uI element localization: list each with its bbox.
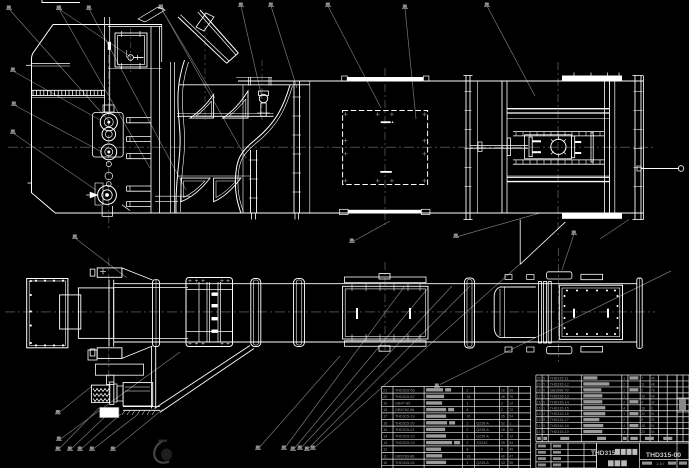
svg-text:THD315-00: THD315-00 [646,452,681,459]
svg-text:34: 34 [509,441,513,445]
svg-text:THD315-57: THD315-57 [395,395,415,399]
svg-text:12: 12 [537,424,541,428]
svg-text:47: 47 [509,454,513,458]
svg-text:17: 17 [383,415,387,419]
svg-text:16: 16 [383,421,387,425]
svg-text:4: 4 [623,406,625,410]
svg-text:3: 3 [543,394,545,398]
svg-text:78: 78 [651,388,655,392]
svg-text:19: 19 [383,402,387,406]
svg-text:Q235-A: Q235-A [476,421,489,425]
svg-text:12: 12 [509,402,513,406]
svg-text:30: 30 [641,394,645,398]
svg-text:19: 19 [537,382,541,386]
svg-text:8: 8 [543,418,545,422]
svg-text:2: 2 [466,388,468,392]
svg-text:THD315: THD315 [591,450,616,457]
svg-text:4: 4 [641,400,643,404]
svg-text:Q235-A: Q235-A [476,428,489,432]
svg-text:Q235-A: Q235-A [476,435,489,439]
svg-text:48: 48 [501,395,505,399]
svg-text:40: 40 [501,454,505,458]
svg-text:15: 15 [537,406,541,410]
svg-text:10: 10 [383,461,387,465]
svg-text:43: 43 [501,461,505,465]
svg-text:GB1096-79: GB1096-79 [550,388,569,392]
svg-text:8: 8 [466,408,468,412]
svg-text:8: 8 [466,448,468,452]
svg-text:GB5783-86: GB5783-86 [395,454,414,458]
svg-text:THD315-18: THD315-18 [550,424,569,428]
svg-text:16: 16 [501,388,505,392]
svg-text:49: 49 [651,376,655,380]
svg-text:13: 13 [537,418,541,422]
svg-text:5: 5 [543,382,545,386]
svg-text:THD315-24: THD315-24 [395,461,415,465]
svg-text:11: 11 [383,454,387,458]
svg-text:54: 54 [509,415,513,419]
svg-text:1: 1 [466,461,468,465]
svg-text:16: 16 [466,454,470,458]
svg-text:1:10: 1:10 [656,461,665,466]
svg-text:20: 20 [537,376,541,380]
svg-text:38: 38 [641,424,645,428]
svg-text:15: 15 [383,428,387,432]
svg-text:13: 13 [383,441,387,445]
svg-text:GB5782-86: GB5782-86 [395,408,414,412]
svg-text:9: 9 [641,418,643,422]
svg-text:12: 12 [383,448,387,452]
svg-text:2: 2 [466,435,468,439]
svg-text:33: 33 [641,430,645,434]
svg-text:THD315-17: THD315-17 [550,418,569,422]
svg-text:6: 6 [543,388,545,392]
svg-text:1: 1 [543,406,545,410]
svg-text:32: 32 [651,418,655,422]
svg-text:14: 14 [537,412,541,416]
svg-text:32: 32 [641,412,645,416]
svg-text:52: 52 [501,421,505,425]
svg-text:2: 2 [623,400,625,404]
svg-text:16: 16 [466,395,470,399]
svg-text:8: 8 [501,448,503,452]
svg-text:5: 5 [543,400,545,404]
svg-text:THD315-11: THD315-11 [550,376,569,380]
svg-text:29: 29 [509,388,513,392]
svg-text:18: 18 [383,408,387,412]
svg-text:72: 72 [509,408,513,412]
svg-text:14: 14 [383,435,387,439]
svg-text:THD315-13: THD315-13 [550,394,569,398]
svg-text:THD315-56: THD315-56 [395,388,415,392]
svg-text:THD315-19: THD315-19 [395,415,415,419]
svg-text:1: 1 [623,376,625,380]
svg-text:2: 2 [466,421,468,425]
svg-text:THD315-21: THD315-21 [395,428,415,432]
svg-text:THD315-15: THD315-15 [550,406,569,410]
svg-text:16: 16 [466,415,470,419]
svg-text:9: 9 [651,406,653,410]
svg-text:1: 1 [466,402,468,406]
svg-text:11: 11 [641,382,645,386]
svg-text:2: 2 [623,388,625,392]
svg-text:2: 2 [623,418,625,422]
svg-text:20: 20 [383,395,387,399]
svg-text:4: 4 [543,412,545,416]
svg-text:1: 1 [623,412,625,416]
svg-text:51: 51 [651,412,655,416]
svg-text:2: 2 [466,428,468,432]
svg-text:30: 30 [651,400,655,404]
svg-text:1: 1 [623,430,625,434]
svg-text:ZG310: ZG310 [476,441,487,445]
svg-text:THD315-14: THD315-14 [550,400,569,404]
svg-text:1: 1 [623,394,625,398]
svg-text:THD315-20: THD315-20 [395,421,415,425]
svg-text:THD315-16: THD315-16 [550,412,569,416]
svg-text:5: 5 [543,376,545,380]
svg-text:2: 2 [501,408,503,412]
svg-text:2: 2 [466,441,468,445]
svg-text:THD315-10: THD315-10 [550,430,569,434]
svg-text:2: 2 [501,402,503,406]
svg-text:30: 30 [509,461,513,465]
svg-text:49: 49 [509,448,513,452]
svg-text:49: 49 [651,394,655,398]
svg-text:6: 6 [543,430,545,434]
svg-text:39: 39 [501,441,505,445]
svg-text:1: 1 [509,421,511,425]
svg-text:THD315-12: THD315-12 [550,382,569,386]
svg-text:18: 18 [641,406,645,410]
svg-text:2: 2 [623,382,625,386]
svg-text:9: 9 [543,424,545,428]
svg-text:12: 12 [509,435,513,439]
svg-text:64: 64 [651,430,655,434]
svg-text:GB97-85: GB97-85 [395,402,410,406]
svg-text:16: 16 [537,400,541,404]
svg-text:48: 48 [651,382,655,386]
svg-text:11: 11 [537,430,541,434]
svg-text:35: 35 [501,415,505,419]
svg-text:18: 18 [537,388,541,392]
svg-text:Q235-A: Q235-A [476,461,489,465]
svg-text:52: 52 [651,424,655,428]
svg-text:4: 4 [623,424,625,428]
svg-text:17: 17 [537,394,541,398]
svg-text:THD315-23: THD315-23 [395,441,415,445]
svg-text:7: 7 [641,376,643,380]
svg-text:THD315-22: THD315-22 [395,435,415,439]
svg-text:18: 18 [501,428,505,432]
svg-text:20: 20 [509,428,513,432]
svg-text:70: 70 [509,395,513,399]
svg-text:7: 7 [501,435,503,439]
svg-text:5: 5 [641,388,643,392]
svg-text:21: 21 [383,388,387,392]
